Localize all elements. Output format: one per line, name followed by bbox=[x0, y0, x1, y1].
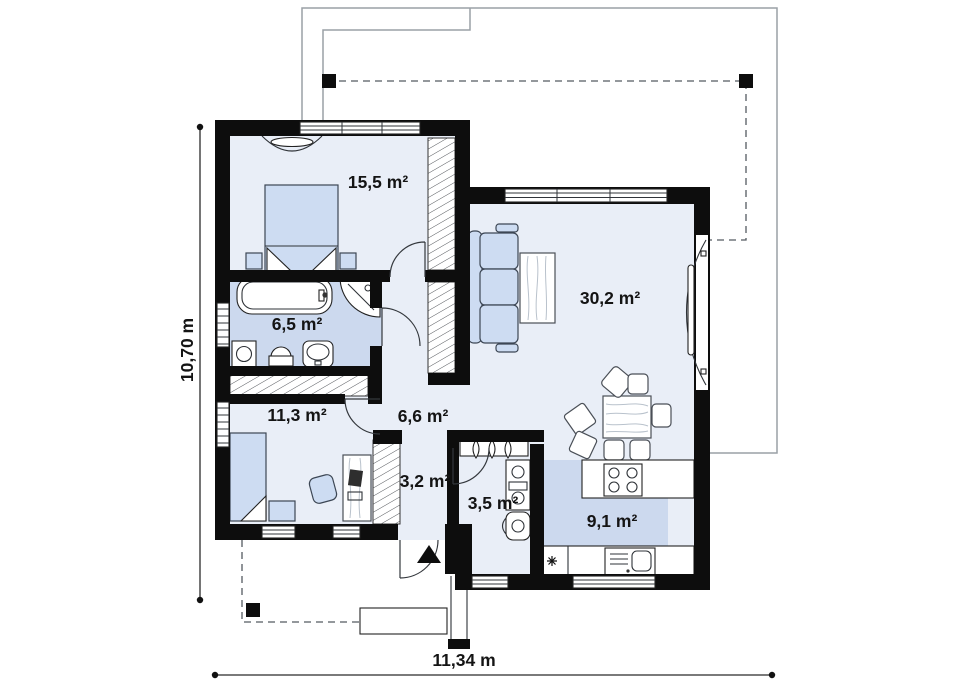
floor-plan: 15,5 m² 30,2 m² 6,5 m² 11,3 m² 6,6 m² 3,… bbox=[0, 0, 960, 690]
porch-post-icon bbox=[246, 603, 260, 617]
chair-icon bbox=[630, 440, 650, 460]
floor-plan-drawing: 15,5 m² 30,2 m² 6,5 m² 11,3 m² 6,6 m² 3,… bbox=[0, 0, 960, 690]
wardrobe-icon bbox=[373, 440, 400, 524]
water-heater-icon bbox=[503, 512, 531, 540]
window-icon bbox=[472, 576, 508, 588]
coffee-table-icon bbox=[520, 253, 555, 323]
bed-double-icon bbox=[265, 185, 338, 273]
dimension-label-width: 11,34 m bbox=[432, 650, 495, 670]
terrace-post-icon bbox=[322, 74, 336, 88]
room-label-kitchen: 9,1 m² bbox=[587, 511, 638, 531]
washing-machine-icon bbox=[232, 341, 256, 367]
chair-icon bbox=[652, 404, 671, 427]
sofa-icon bbox=[468, 224, 518, 352]
sink-icon bbox=[303, 341, 333, 367]
bed-single-icon bbox=[230, 433, 266, 521]
nightstand-icon bbox=[246, 253, 262, 269]
dishwasher-star-icon bbox=[547, 556, 557, 566]
window-icon bbox=[217, 402, 229, 447]
wardrobe-icon bbox=[428, 282, 455, 373]
wardrobe-icon bbox=[428, 138, 455, 270]
desk-icon bbox=[343, 455, 371, 521]
window-icon bbox=[505, 189, 667, 202]
window-icon bbox=[262, 526, 295, 538]
kitchen-sink-icon bbox=[605, 548, 655, 575]
chair-icon bbox=[604, 440, 624, 460]
room-label-bedroom-1: 15,5 m² bbox=[348, 172, 408, 192]
entrance-door-icon bbox=[400, 540, 441, 578]
room-label-hallway: 6,6 m² bbox=[398, 406, 449, 426]
nightstand-icon bbox=[269, 501, 295, 521]
stove-icon bbox=[604, 464, 642, 496]
hall-closet-icon bbox=[230, 374, 368, 396]
dimension-label-height: 10,70 m bbox=[177, 318, 197, 382]
room-label-living-room: 30,2 m² bbox=[580, 288, 640, 308]
nightstand-icon bbox=[340, 253, 356, 269]
radiator-icon bbox=[460, 440, 528, 458]
dining-table-icon bbox=[603, 396, 651, 438]
bathtub-icon bbox=[237, 277, 332, 314]
window-icon bbox=[300, 122, 420, 134]
window-icon bbox=[217, 303, 229, 347]
room-label-bathroom: 6,5 m² bbox=[272, 314, 323, 334]
room-label-hall-closet: 3,2 m² bbox=[400, 471, 451, 491]
entry-step bbox=[360, 608, 447, 634]
window-icon bbox=[333, 526, 360, 538]
room-label-bedroom-2: 11,3 m² bbox=[267, 405, 327, 425]
window-icon bbox=[573, 576, 655, 588]
terrace-post-icon bbox=[739, 74, 753, 88]
room-label-utility: 3,5 m² bbox=[468, 493, 519, 513]
chair-icon bbox=[628, 374, 648, 394]
